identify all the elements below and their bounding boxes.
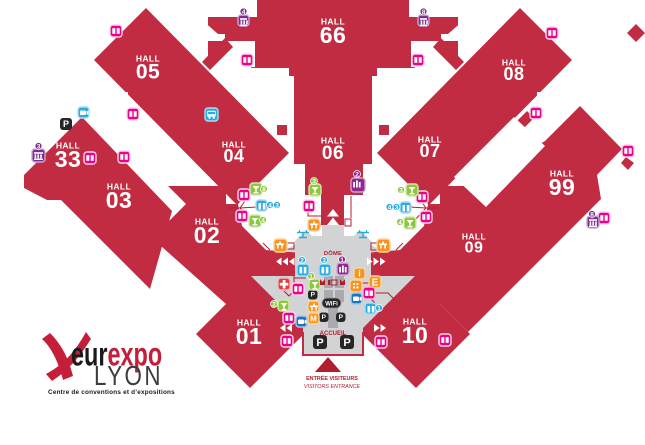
svg-text:8: 8 — [422, 9, 426, 16]
svg-text:3: 3 — [275, 203, 279, 210]
svg-text:05: 05 — [136, 60, 160, 83]
svg-text:VISITORS ENTRANCE: VISITORS ENTRANCE — [304, 384, 361, 390]
svg-text:1: 1 — [377, 306, 381, 313]
svg-text:P: P — [311, 292, 316, 299]
svg-text:3: 3 — [399, 188, 403, 195]
svg-text:P: P — [343, 337, 350, 349]
svg-text:10: 10 — [402, 322, 429, 348]
svg-text:33: 33 — [55, 146, 82, 172]
svg-text:M: M — [310, 315, 317, 324]
svg-text:8: 8 — [262, 187, 266, 194]
svg-text:ENTRÉE VISITEURS: ENTRÉE VISITEURS — [306, 374, 358, 382]
svg-text:4: 4 — [268, 203, 272, 210]
svg-text:2: 2 — [272, 302, 276, 309]
svg-text:Centre de conventions et d’exp: Centre de conventions et d’expositions — [48, 389, 175, 396]
svg-text:01: 01 — [236, 323, 263, 349]
svg-text:P: P — [322, 314, 327, 321]
svg-text:2: 2 — [300, 258, 304, 265]
svg-text:04: 04 — [223, 146, 244, 166]
svg-text:DÔME: DÔME — [324, 249, 342, 257]
svg-text:8: 8 — [590, 212, 594, 219]
svg-text:07: 07 — [419, 141, 440, 161]
svg-text:66: 66 — [320, 22, 347, 48]
svg-text:2: 2 — [355, 172, 359, 179]
svg-text:4: 4 — [242, 9, 246, 16]
svg-text:4: 4 — [388, 205, 392, 212]
svg-text:P: P — [316, 337, 323, 349]
svg-text:08: 08 — [503, 64, 524, 84]
svg-text:3: 3 — [312, 179, 316, 186]
svg-text:LYON: LYON — [94, 361, 163, 392]
svg-text:3: 3 — [395, 205, 399, 212]
svg-text:P: P — [339, 314, 344, 321]
svg-text:P: P — [63, 119, 69, 129]
svg-text:03: 03 — [106, 187, 133, 213]
svg-text:3: 3 — [37, 144, 41, 151]
svg-text:3: 3 — [322, 258, 326, 265]
svg-text:4: 4 — [261, 218, 265, 225]
svg-text:1: 1 — [340, 257, 344, 264]
svg-text:WiFi: WiFi — [325, 302, 338, 308]
svg-text:06: 06 — [322, 143, 344, 164]
svg-text:09: 09 — [465, 240, 484, 257]
svg-text:1: 1 — [309, 274, 313, 281]
svg-text:02: 02 — [194, 222, 221, 248]
svg-text:4: 4 — [398, 220, 402, 227]
svg-text:i: i — [358, 269, 361, 279]
svg-text:99: 99 — [549, 174, 576, 200]
